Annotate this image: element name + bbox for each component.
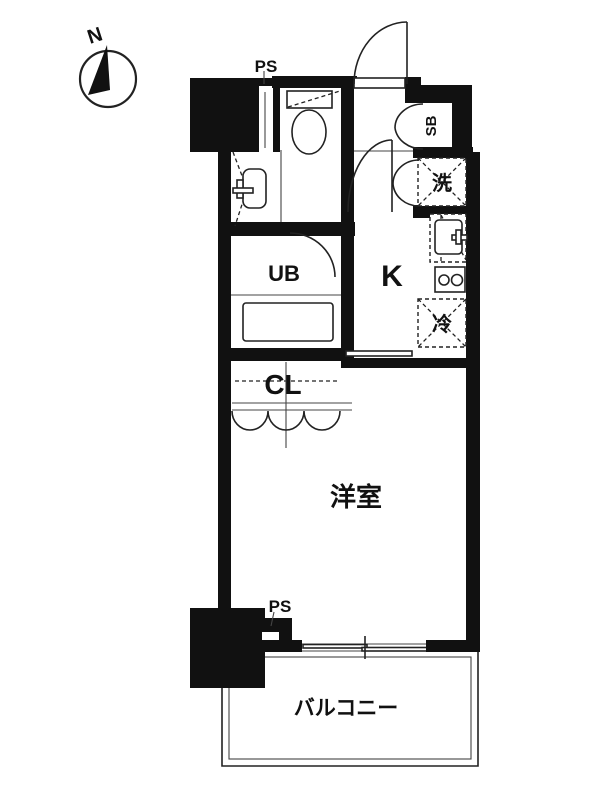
kitchen-room-sliding-door bbox=[346, 351, 412, 356]
sb-doors bbox=[395, 104, 423, 149]
toilet-bowl bbox=[292, 110, 326, 154]
balcony-label: バルコニー bbox=[294, 697, 399, 720]
bathtub bbox=[243, 303, 333, 341]
entrance-door-arc bbox=[354, 22, 407, 84]
toilet-room bbox=[281, 91, 340, 222]
ps-bottom-label: PS bbox=[269, 597, 292, 616]
laundry-label: 洗 bbox=[432, 172, 452, 195]
closet-label: CL bbox=[264, 369, 301, 400]
entrance-threshold bbox=[354, 78, 405, 88]
floor-plan-page: N PS SB 洗 UB K 冷 CL 洋室 PS バルコニー bbox=[0, 0, 600, 800]
unit-bath-label: UB bbox=[268, 261, 300, 286]
laundry-door-arc bbox=[393, 160, 419, 184]
wall-right-outer bbox=[466, 152, 480, 652]
refrigerator-label: 冷 bbox=[432, 312, 452, 336]
unit-bath bbox=[231, 233, 341, 341]
laundry-door-arc bbox=[393, 184, 419, 206]
floor-plan-drawing: N PS SB 洗 UB K 冷 CL 洋室 PS バルコニー bbox=[0, 0, 600, 800]
basin-faucet bbox=[233, 188, 253, 193]
balcony-window bbox=[300, 636, 429, 659]
shoe-box-label: SB bbox=[423, 115, 440, 136]
toilet-tank bbox=[287, 91, 332, 108]
ps-top-label: PS bbox=[255, 57, 278, 76]
pillar-bottom-left bbox=[190, 608, 265, 688]
laundry-space bbox=[393, 158, 466, 206]
compass-north-label: N bbox=[85, 23, 106, 48]
sink-faucet bbox=[456, 230, 461, 244]
washroom bbox=[233, 152, 266, 226]
compass: N bbox=[80, 23, 136, 107]
kitchen-label: K bbox=[381, 260, 403, 293]
wall-left-outer bbox=[218, 145, 231, 612]
entrance bbox=[354, 22, 413, 151]
western-room-label: 洋室 bbox=[330, 482, 382, 512]
